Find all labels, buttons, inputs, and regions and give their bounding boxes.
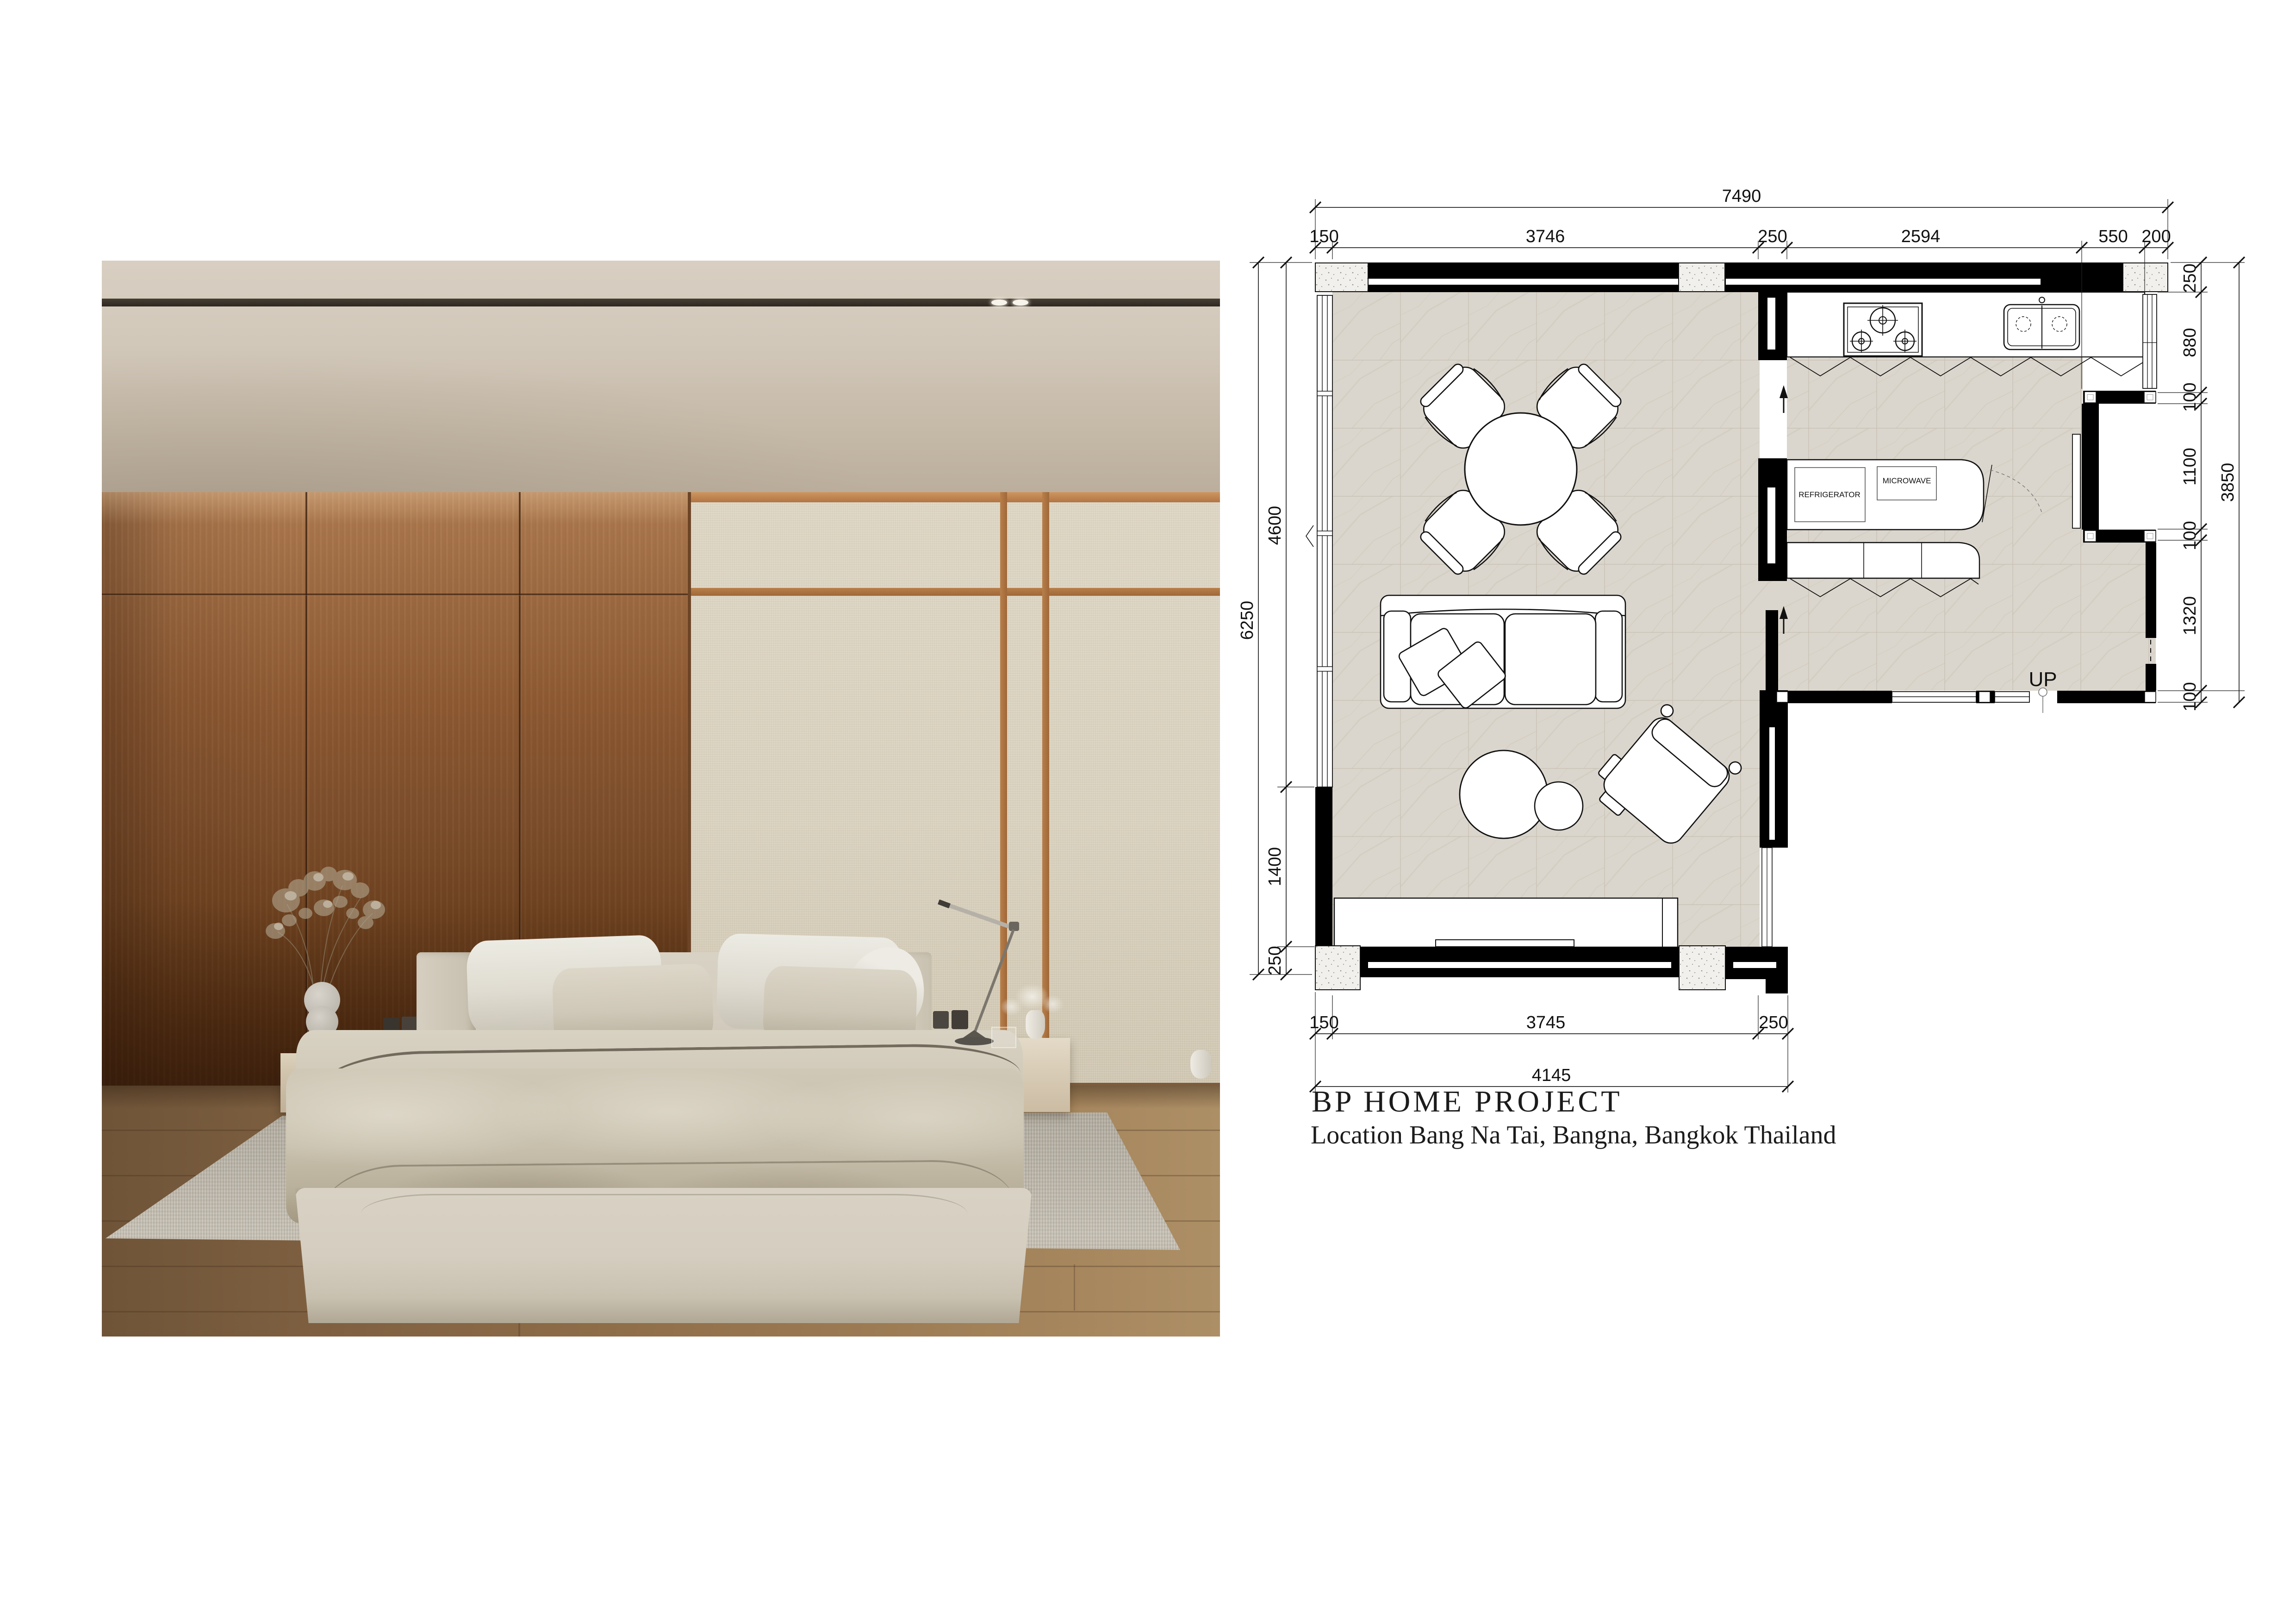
svg-text:150: 150 [1309,1013,1338,1032]
svg-text:2594: 2594 [1901,227,1941,246]
svg-text:150: 150 [1309,227,1338,246]
svg-text:UP: UP [2028,668,2057,691]
svg-text:100: 100 [2180,682,2200,711]
svg-text:250: 250 [1758,227,1787,246]
svg-text:7490: 7490 [1722,187,1761,206]
svg-text:880: 880 [2180,328,2200,357]
svg-text:3745: 3745 [1526,1013,1566,1032]
svg-text:3746: 3746 [1526,227,1565,246]
svg-text:1100: 1100 [2180,448,2200,486]
svg-text:100: 100 [2180,521,2200,550]
svg-text:250: 250 [1759,1013,1788,1032]
svg-text:200: 200 [2141,227,2171,246]
svg-text:3850: 3850 [2218,463,2238,502]
svg-text:1400: 1400 [1265,847,1285,887]
svg-text:4145: 4145 [1532,1066,1571,1085]
svg-text:6250: 6250 [1238,601,1257,640]
svg-text:1320: 1320 [2180,596,2200,636]
svg-text:250: 250 [1265,946,1285,975]
svg-text:MICROWAVE: MICROWAVE [1883,476,1931,485]
svg-text:4600: 4600 [1265,506,1285,545]
svg-text:250: 250 [2180,263,2200,293]
svg-text:REFRIGERATOR: REFRIGERATOR [1798,490,1860,499]
svg-text:100: 100 [2180,382,2200,412]
svg-text:550: 550 [2098,227,2128,246]
